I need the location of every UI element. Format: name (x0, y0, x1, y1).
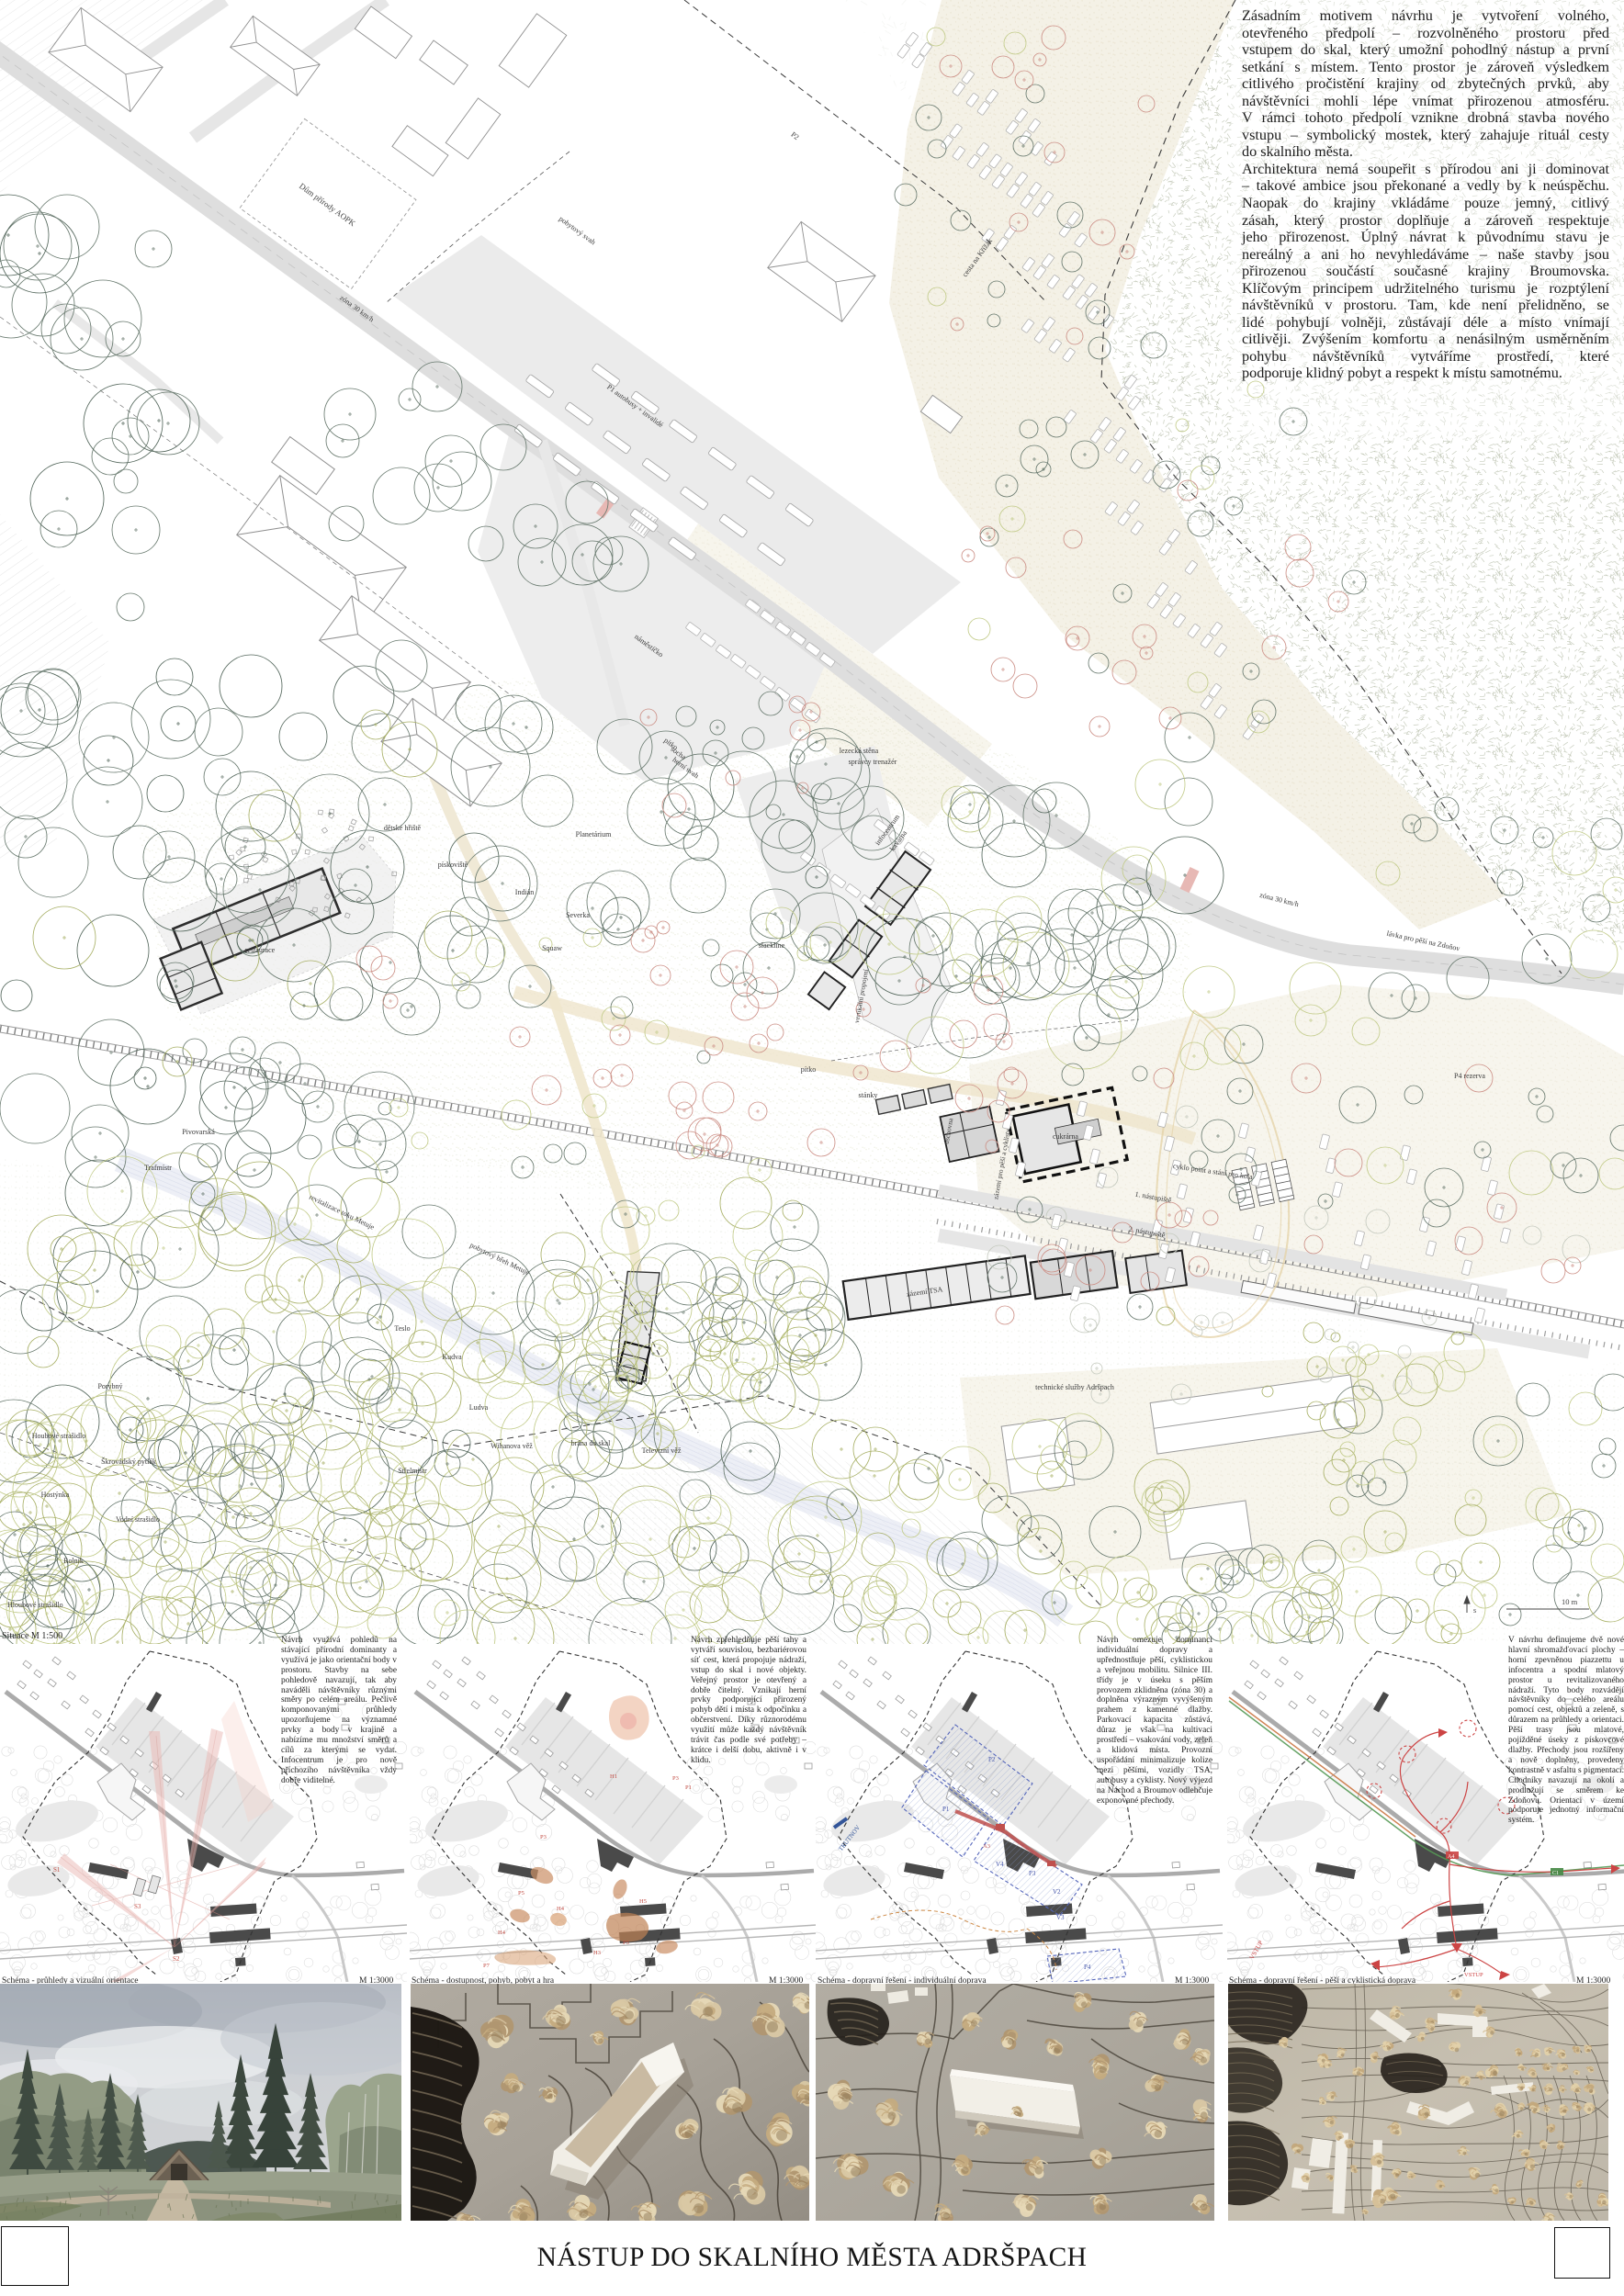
svg-text:Houbové strašidlo: Houbové strašidlo (32, 1432, 85, 1440)
svg-text:S1: S1 (53, 1866, 61, 1874)
svg-text:A3: A3 (983, 1843, 990, 1850)
svg-text:Porybný: Porybný (97, 1382, 122, 1390)
svg-text:P1: P1 (685, 1784, 692, 1791)
svg-text:restaurace: restaurace (245, 946, 276, 954)
svg-text:P4 rezerva: P4 rezerva (1454, 1072, 1485, 1080)
svg-text:technické služby Adršpach: technické služby Adršpach (1035, 1383, 1114, 1391)
svg-text:cukrárna: cukrárna (1053, 1132, 1078, 1141)
svg-text:správcy trenažér: správcy trenažér (849, 758, 897, 766)
svg-text:S3: S3 (134, 1903, 141, 1910)
svg-text:Vodní strašidlo: Vodní strašidlo (116, 1515, 160, 1524)
svg-text:H3: H3 (593, 1950, 601, 1956)
svg-text:Indián: Indián (515, 888, 534, 896)
svg-text:Ludva: Ludva (469, 1403, 489, 1412)
svg-text:dětské hřiště: dětské hřiště (384, 824, 422, 832)
svg-text:H4: H4 (498, 1930, 506, 1936)
svg-text:Trafmístr: Trafmístr (144, 1164, 172, 1172)
svg-text:H4: H4 (557, 1906, 565, 1912)
svg-text:Televizní věž: Televizní věž (642, 1446, 682, 1455)
svg-text:VSTUP: VSTUP (1464, 1972, 1483, 1978)
svg-text:C1: C1 (1552, 1871, 1559, 1876)
svg-text:V4: V4 (996, 1861, 1004, 1868)
svg-text:P5: P5 (623, 1940, 629, 1946)
svg-text:V3: V3 (1056, 1914, 1065, 1921)
svg-text:Severka: Severka (566, 911, 590, 919)
svg-text:P7: P7 (483, 1963, 491, 1969)
svg-text:P3: P3 (1029, 1870, 1036, 1877)
svg-text:Střelmistr: Střelmistr (398, 1467, 427, 1475)
svg-text:Teslo: Teslo (394, 1324, 410, 1333)
svg-text:Planetárium: Planetárium (576, 830, 612, 838)
svg-text:s: s (1473, 1606, 1476, 1615)
svg-text:stánky: stánky (859, 1091, 878, 1099)
svg-text:P5: P5 (518, 1890, 524, 1896)
svg-text:Hostýnka: Hostýnka (41, 1491, 70, 1499)
svg-text:Hloubové strašidlo: Hloubové strašidlo (7, 1601, 63, 1609)
svg-text:Škrovádský pytlák: Škrovádský pytlák (101, 1458, 156, 1466)
svg-text:P3: P3 (672, 1775, 679, 1782)
svg-text:Kudva: Kudva (442, 1353, 462, 1361)
svg-text:V2: V2 (1053, 1888, 1061, 1896)
svg-text:Pivovarská: Pivovarská (182, 1128, 215, 1136)
svg-text:P2: P2 (988, 1756, 996, 1763)
svg-text:Rolník: Rolník (63, 1557, 84, 1565)
svg-text:A4: A4 (1448, 1854, 1454, 1860)
svg-text:P4: P4 (1084, 1964, 1091, 1971)
svg-text:P1: P1 (942, 1806, 950, 1813)
svg-text:Wihanova věž: Wihanova věž (491, 1442, 533, 1450)
svg-text:lezecká stěna: lezecká stěna (840, 747, 879, 755)
svg-text:H5: H5 (639, 1898, 647, 1905)
svg-text:H1: H1 (610, 1773, 617, 1780)
svg-text:brána do skal: brána do skal (571, 1439, 611, 1447)
svg-text:Squaw: Squaw (542, 944, 562, 952)
svg-text:pískoviště: pískoviště (438, 861, 468, 869)
svg-text:Situace M 1:500: Situace M 1:500 (2, 1631, 62, 1641)
svg-text:S2: S2 (173, 1955, 180, 1963)
svg-text:P3: P3 (540, 1834, 547, 1840)
svg-text:pítko: pítko (801, 1065, 816, 1074)
svg-text:slackline: slackline (759, 941, 785, 950)
svg-text:10 m: 10 m (1562, 1597, 1578, 1606)
